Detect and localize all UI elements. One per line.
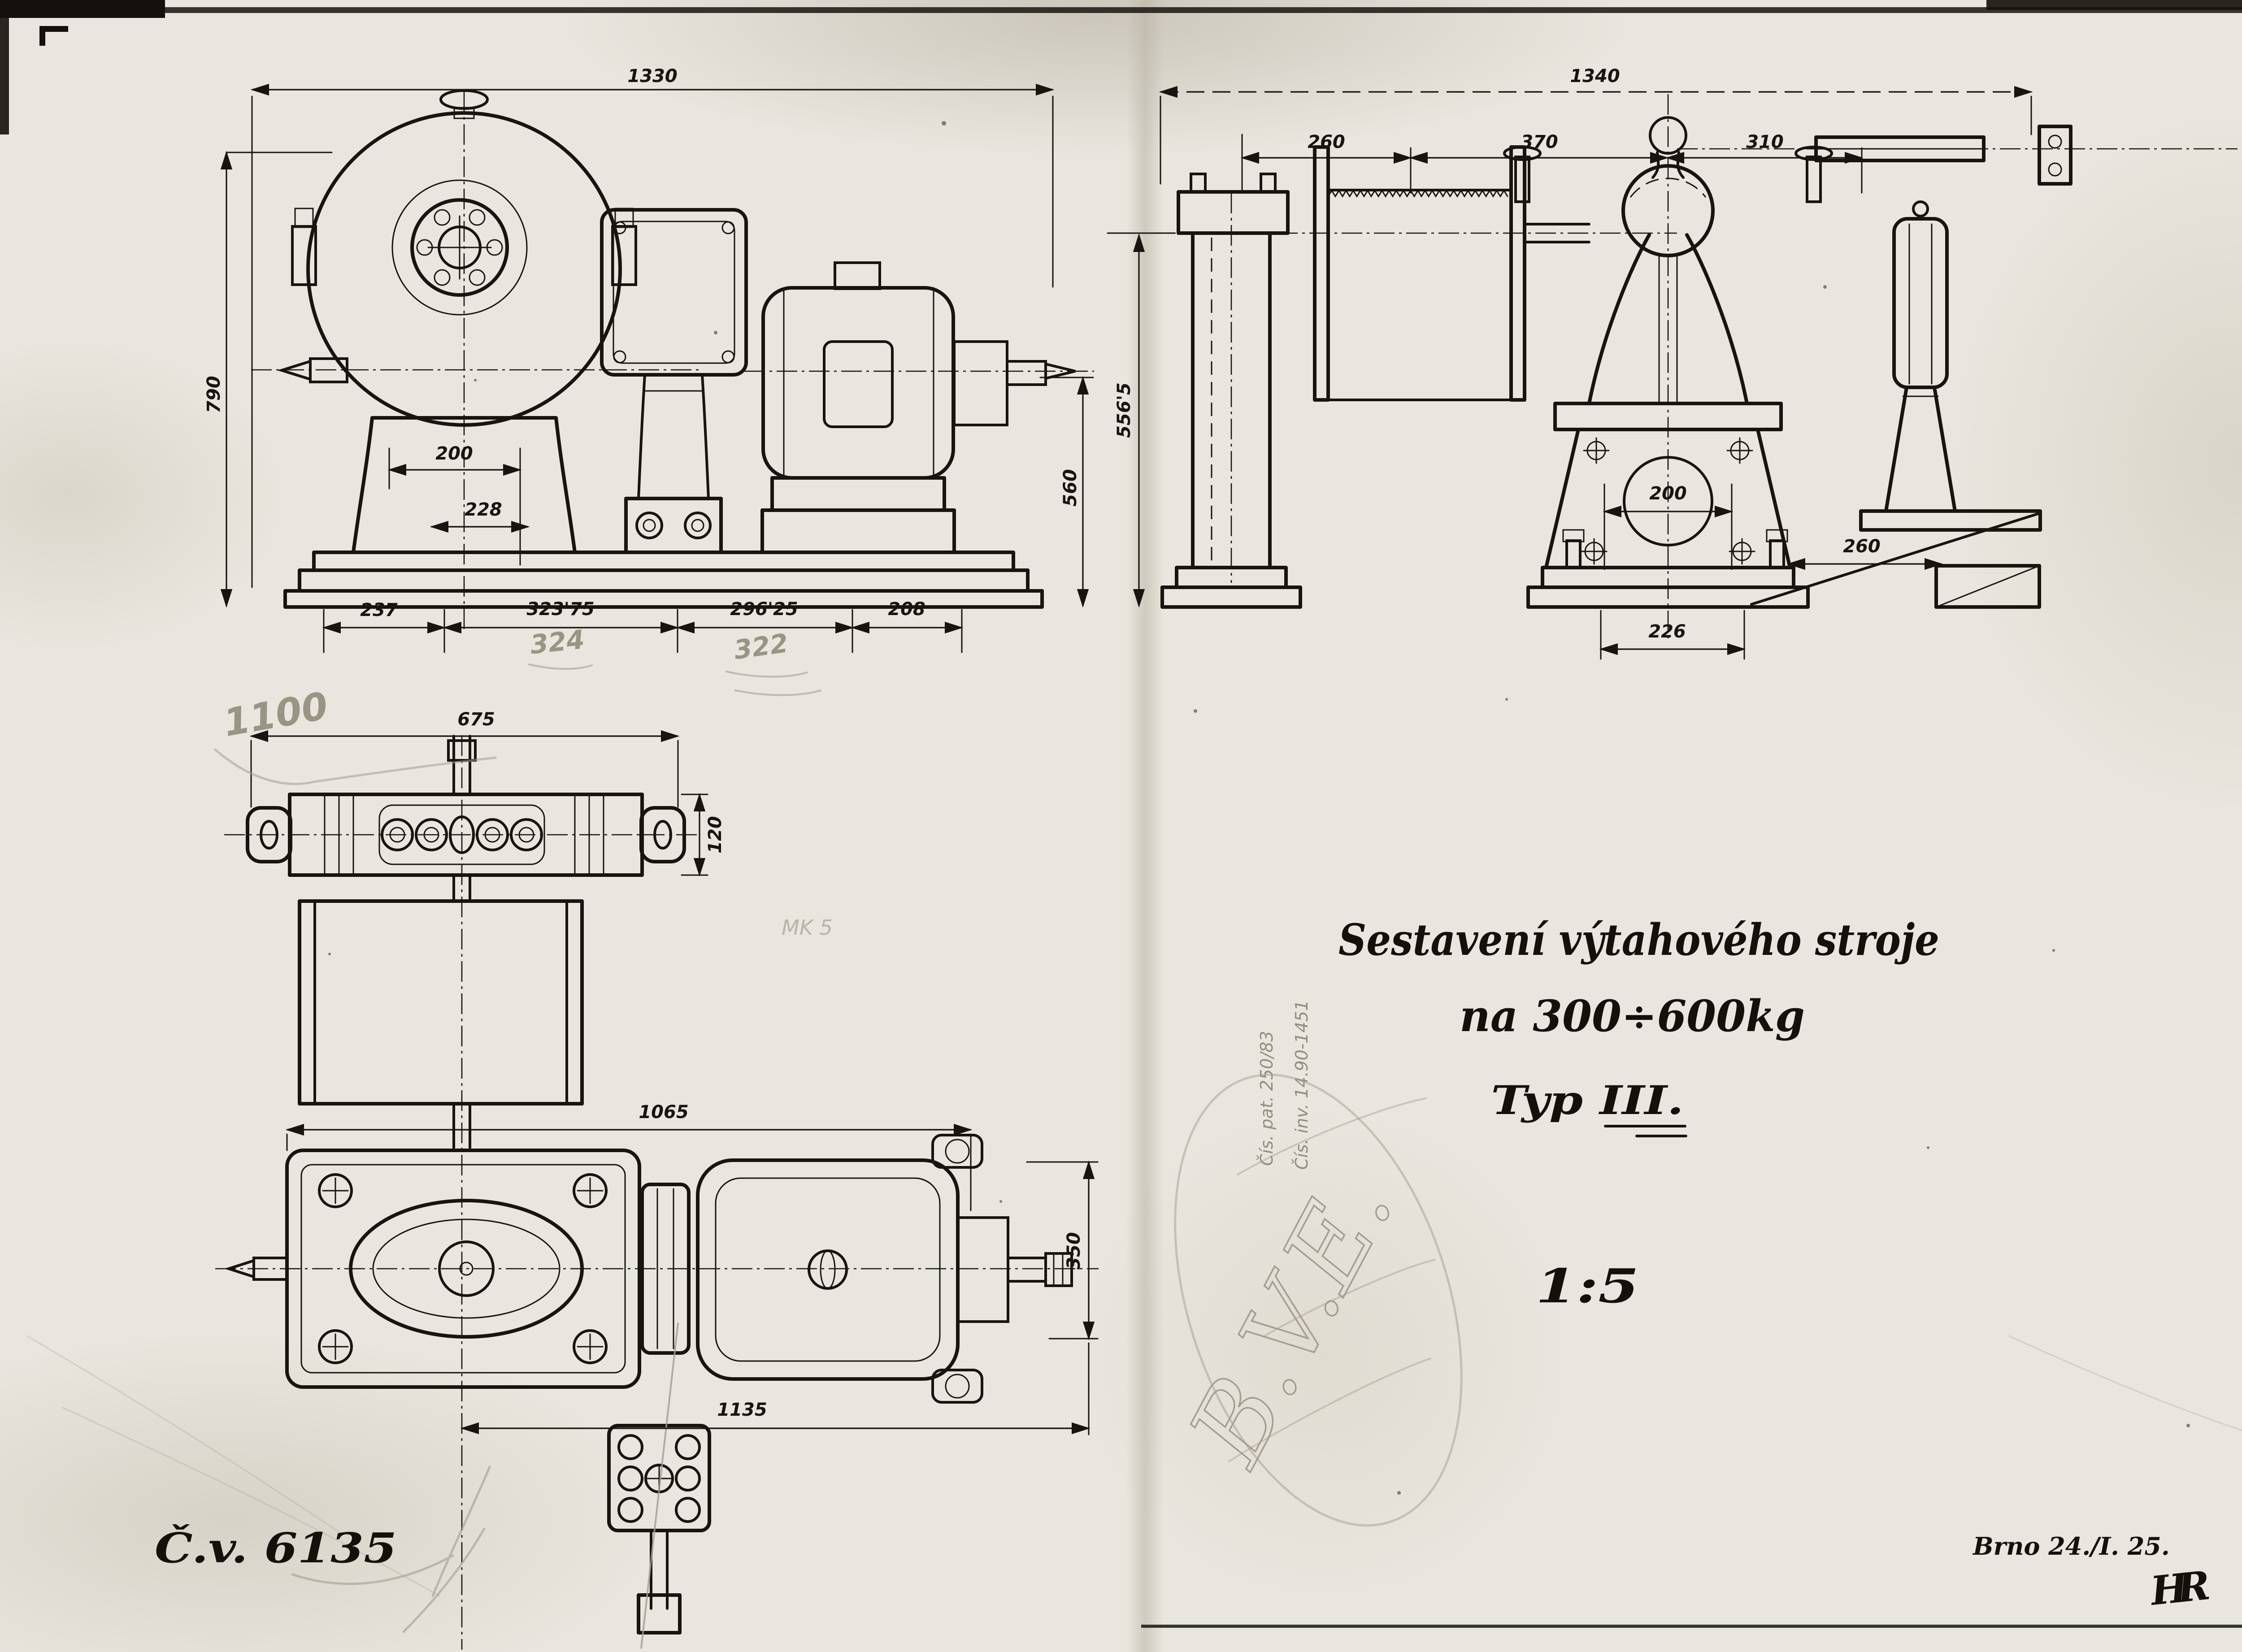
view-side-elevation: 1340 260 370 310 556'5 200 226 260 [1108, 66, 2238, 659]
bearing-bracket-plan [248, 736, 684, 875]
scale-label: 1:5 [1536, 1258, 1639, 1314]
dim-bracket-width: 120 [705, 816, 726, 854]
dim-foot-width: 226 [1648, 621, 1686, 642]
pencil-note-322: 322 [732, 628, 790, 665]
top-right-corner-mark [1986, 0, 2242, 10]
pencil-annotations: Čís. inv. 14.90-1451 Čís. pat. 250/83 B.… [292, 915, 1514, 1632]
dim-to-motor-center: 1065 [639, 1102, 688, 1123]
dim-base-a: 237 [360, 600, 398, 620]
base-plinth [285, 552, 1042, 607]
dim-front-height: 790 [204, 376, 224, 413]
dim-half-width: 350 [1064, 1232, 1084, 1270]
rope-coils [1328, 190, 1511, 400]
drawing-number: Č.v. 6135 [155, 1524, 397, 1572]
dim-pedestal-width: 200 [1649, 483, 1687, 504]
slip-ring-block [954, 342, 1007, 425]
pencil-note-324: 324 [529, 624, 586, 660]
dim-drum-to-axis: 370 [1521, 132, 1558, 152]
dim-side-height: 556'5 [1114, 382, 1134, 438]
controller-flange-plan [609, 1323, 709, 1648]
dim-drum-width: 260 [1308, 132, 1345, 152]
drawing-title-line1: Sestavení výtahového stroje [1338, 915, 1939, 965]
left-edge-mark [0, 0, 9, 134]
register-mark-v [39, 26, 45, 46]
dim-base-b: 323'75 [526, 599, 594, 620]
dim-axis-to-brake: 310 [1746, 132, 1784, 152]
drawing-canvas: 1330 790 200 228 560 237 323'75 296'25 2… [0, 0, 2242, 1652]
top-left-corner-mark [0, 0, 165, 18]
type-label: Typ III. [1491, 1077, 1684, 1123]
drawing-title-line2: na 300÷600kg [1460, 991, 1805, 1041]
faint-note: MK 5 [782, 915, 833, 940]
top-edge-line [0, 7, 2242, 13]
drawing-sheet: 1330 790 200 228 560 237 323'75 296'25 2… [0, 0, 2242, 1652]
brake-assembly [1751, 126, 2071, 607]
dim-plan-overall: 1135 [717, 1400, 767, 1420]
type-underline [1605, 1126, 1686, 1136]
dim-front-bracket-offset: 228 [465, 499, 502, 520]
title-block: Sestavení výtahového stroje na 300÷600kg… [155, 915, 2211, 1614]
dim-front-motor-axis: 560 [1060, 469, 1081, 507]
rope-drum [1315, 147, 1525, 400]
dim-side-overall: 1340 [1570, 66, 1620, 87]
controller-box [602, 210, 746, 552]
dim-front-gear-foot: 200 [435, 443, 473, 464]
dim-base-d: 208 [888, 599, 925, 620]
motor [762, 263, 1075, 552]
front-dimensions: 1330 790 200 228 560 237 323'75 296'25 2… [204, 66, 1093, 695]
view-plan: 675 1100 120 1065 350 1135 [215, 684, 1099, 1650]
center-fold-shading [1126, 0, 1164, 1652]
dim-base-c: 296'25 [730, 599, 798, 620]
dim-bracket-depth: 260 [1843, 536, 1881, 557]
place-date: Brno 24./I. 25. [1972, 1532, 2170, 1561]
inventory-note-2: Čís. pat. 250/83 [1257, 1031, 1277, 1166]
shaft-flange [392, 180, 527, 315]
dim-bracket-length: 675 [457, 709, 495, 730]
view-front-elevation: 1330 790 200 228 560 237 323'75 296'25 2… [204, 66, 1094, 695]
drum-plan [300, 876, 582, 1148]
paper-artifacts [0, 0, 2242, 1652]
author-monogram: HR [2147, 1562, 2210, 1614]
bottom-right-border-line [1141, 1625, 2242, 1628]
dim-front-overall: 1330 [627, 66, 677, 87]
